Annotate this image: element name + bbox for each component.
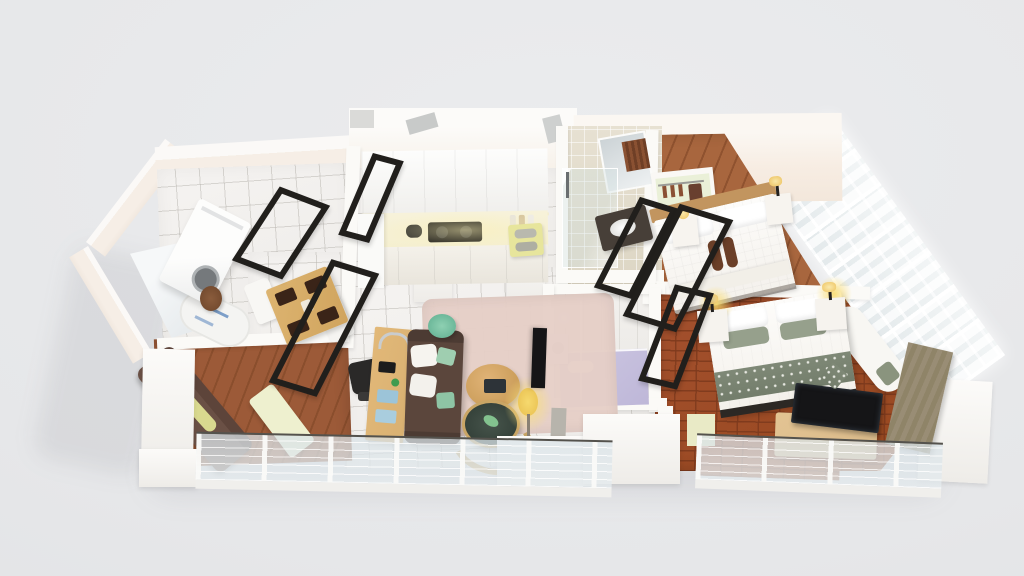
parapet-block	[139, 449, 197, 487]
floor-lamp-pole	[527, 414, 530, 436]
sofa-pillow-green	[435, 346, 456, 366]
sofa-pillow-white	[410, 343, 438, 368]
tray	[515, 241, 538, 252]
apartment-3d-floorplan	[0, 0, 1024, 576]
pot	[406, 225, 422, 238]
green-bottle	[391, 378, 400, 387]
shower-head	[566, 172, 569, 198]
living-wall-tv	[531, 328, 547, 388]
sofa-pillow-white	[409, 373, 438, 398]
table-lamp	[822, 282, 837, 293]
laundry-basket	[200, 286, 222, 311]
tray	[514, 228, 537, 239]
duct-opening-1	[350, 110, 374, 128]
accent-cabinet	[508, 223, 544, 257]
rug-stripe	[194, 315, 213, 326]
green-stool	[428, 314, 456, 338]
placemat	[274, 287, 297, 307]
leaf-decor	[482, 413, 501, 430]
chaise-pillow	[875, 360, 901, 387]
tray	[484, 379, 506, 393]
sofa-pillow-green	[436, 392, 455, 409]
wood-slat-accent	[622, 138, 651, 172]
balcony-railing-left	[195, 432, 612, 498]
blue-mat	[376, 389, 398, 404]
telephone	[378, 361, 396, 373]
nightstand	[815, 297, 847, 331]
balcony-railing-right	[695, 433, 943, 497]
blue-mat	[375, 409, 397, 424]
floor-lamp	[518, 388, 538, 416]
nightstand	[765, 193, 794, 226]
